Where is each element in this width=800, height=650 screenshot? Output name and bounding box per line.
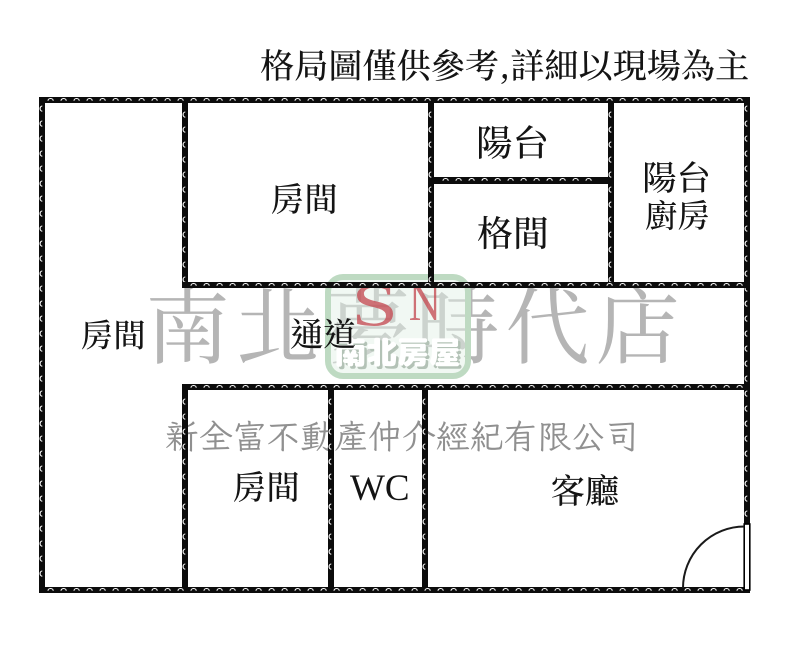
svg-text:WC: WC: [350, 468, 410, 509]
